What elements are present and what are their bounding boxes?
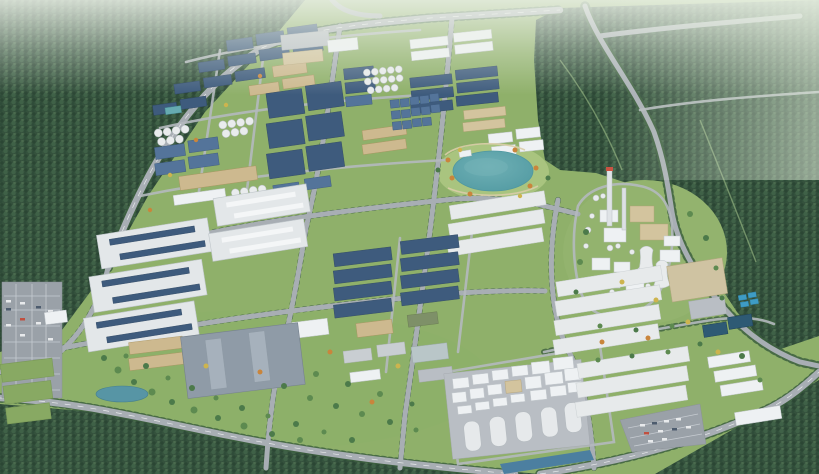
plant-structure xyxy=(463,420,482,452)
tree xyxy=(714,266,719,271)
tree xyxy=(168,173,172,177)
process-tower xyxy=(630,250,635,255)
aerial-scene xyxy=(0,0,819,474)
tree xyxy=(359,411,365,417)
parked-car xyxy=(676,418,681,421)
factory-building xyxy=(305,111,344,141)
plant-structure xyxy=(492,369,509,381)
industrial-building xyxy=(391,110,401,119)
tree xyxy=(101,355,107,361)
plant-structure xyxy=(452,377,469,389)
process-tower xyxy=(584,244,589,249)
parked-car xyxy=(640,424,645,427)
warehouse xyxy=(738,294,747,300)
industrial-building xyxy=(421,106,431,115)
tree xyxy=(191,407,198,414)
tree xyxy=(307,395,313,401)
tree xyxy=(654,298,659,303)
plant-structure xyxy=(489,416,508,448)
parked-car xyxy=(664,420,669,423)
tree xyxy=(686,320,691,325)
tree xyxy=(518,194,522,198)
tree xyxy=(370,400,375,405)
process-tower xyxy=(607,245,613,251)
tree xyxy=(758,378,763,383)
tree xyxy=(169,399,175,405)
tree xyxy=(215,415,221,421)
plant-structure xyxy=(540,406,559,438)
plant-structure xyxy=(544,371,563,385)
tree xyxy=(436,168,441,173)
tree xyxy=(387,419,393,425)
tree xyxy=(204,364,209,369)
factory-building xyxy=(266,119,305,149)
plant-structure xyxy=(530,389,547,401)
industrial-building xyxy=(488,132,513,144)
tree xyxy=(297,437,303,443)
industrial-building xyxy=(516,127,541,139)
tree xyxy=(143,363,149,369)
tree xyxy=(468,192,473,197)
tree xyxy=(450,176,455,181)
parked-car xyxy=(686,426,691,429)
industrial-building xyxy=(519,140,544,152)
tree xyxy=(281,383,287,389)
tree xyxy=(600,340,605,345)
tree xyxy=(630,354,635,359)
tree xyxy=(698,342,703,347)
plant-structure xyxy=(505,380,522,394)
tree xyxy=(574,290,579,295)
industrial-building xyxy=(431,104,441,113)
plant-structure xyxy=(472,373,489,385)
chimney-stack-2 xyxy=(622,188,626,230)
tree xyxy=(634,328,639,333)
parked-car xyxy=(20,318,25,321)
parked-car xyxy=(48,338,53,341)
tree xyxy=(720,296,725,301)
tree xyxy=(333,403,339,409)
parked-car xyxy=(20,302,25,305)
parked-car xyxy=(644,432,649,435)
plant-structure xyxy=(475,401,490,410)
parked-car xyxy=(652,422,657,425)
plant-structure xyxy=(457,405,472,414)
parked-car xyxy=(672,428,677,431)
parked-car xyxy=(36,306,41,309)
industrial-building xyxy=(410,96,420,105)
plant-structure xyxy=(493,397,508,406)
industrial-building xyxy=(401,109,411,118)
tree xyxy=(189,385,195,391)
tree xyxy=(528,184,533,189)
tree xyxy=(241,423,248,430)
tree xyxy=(115,367,122,374)
plant-structure xyxy=(514,411,533,443)
tree xyxy=(446,158,451,163)
tree xyxy=(670,324,675,329)
tree xyxy=(620,280,625,285)
tree xyxy=(458,148,462,152)
tree xyxy=(322,430,327,435)
tree xyxy=(149,389,156,396)
industrial-building xyxy=(390,99,400,108)
meadow-pond xyxy=(96,386,148,402)
tree xyxy=(703,235,709,241)
plant-building xyxy=(664,236,680,246)
tree xyxy=(224,103,228,107)
tree xyxy=(313,371,319,377)
tree xyxy=(166,376,171,381)
tree xyxy=(328,350,333,355)
tree xyxy=(293,421,299,427)
tree xyxy=(239,405,245,411)
tree xyxy=(513,148,518,153)
tree xyxy=(410,402,415,407)
plant-structure xyxy=(452,392,467,403)
office-building xyxy=(44,310,67,325)
plant-structure xyxy=(470,388,485,399)
factory-building xyxy=(266,149,305,179)
plant-building xyxy=(630,206,654,222)
parked-car xyxy=(36,322,41,325)
tree xyxy=(349,437,355,443)
plant-structure xyxy=(487,384,502,395)
tree xyxy=(124,354,129,359)
tree xyxy=(716,350,721,355)
tree xyxy=(377,391,383,397)
industrial-building xyxy=(422,117,432,126)
parked-car xyxy=(658,430,663,433)
parked-car xyxy=(662,438,667,441)
parked-car xyxy=(20,334,25,337)
tree xyxy=(148,208,152,212)
industrial-building xyxy=(400,98,410,107)
industrial-park-rendering xyxy=(0,0,819,474)
industrial-building xyxy=(402,120,412,129)
parked-car xyxy=(6,300,11,303)
parked-car xyxy=(6,324,11,327)
warehouse xyxy=(740,301,749,307)
industrial-building xyxy=(392,121,402,130)
tree xyxy=(258,370,263,375)
lake-highlight xyxy=(464,158,508,176)
tree xyxy=(131,379,137,385)
haze-overlay-right xyxy=(600,0,819,180)
plant-structure xyxy=(511,365,528,377)
tree xyxy=(646,336,651,341)
process-tower xyxy=(590,214,595,219)
tree xyxy=(546,176,551,181)
tree xyxy=(583,229,589,235)
warehouse xyxy=(748,292,757,298)
industrial-building xyxy=(411,107,421,116)
plant-structure xyxy=(531,361,550,375)
tree xyxy=(194,138,198,142)
industrial-building xyxy=(420,95,430,104)
tree xyxy=(598,324,603,329)
parked-car xyxy=(648,440,653,443)
tree xyxy=(666,350,671,355)
tree xyxy=(269,431,275,437)
industrial-building xyxy=(412,118,422,127)
tree xyxy=(534,166,539,171)
tree xyxy=(596,358,601,363)
plant-building xyxy=(592,258,610,270)
plant-structure xyxy=(525,376,542,390)
plant-structure xyxy=(550,385,567,397)
plant-structure xyxy=(510,393,525,402)
tree xyxy=(345,381,351,387)
tree xyxy=(214,396,219,401)
process-tower xyxy=(601,194,606,199)
tree xyxy=(739,353,745,359)
process-tower xyxy=(593,195,599,201)
tree xyxy=(414,428,419,433)
tree xyxy=(577,259,583,265)
parked-car xyxy=(6,308,11,311)
warehouse xyxy=(750,299,759,305)
tree xyxy=(266,414,271,419)
process-tower xyxy=(616,244,621,249)
factory-building xyxy=(306,142,345,172)
tree xyxy=(687,211,693,217)
plant-structure xyxy=(553,356,574,370)
tree xyxy=(396,364,401,369)
